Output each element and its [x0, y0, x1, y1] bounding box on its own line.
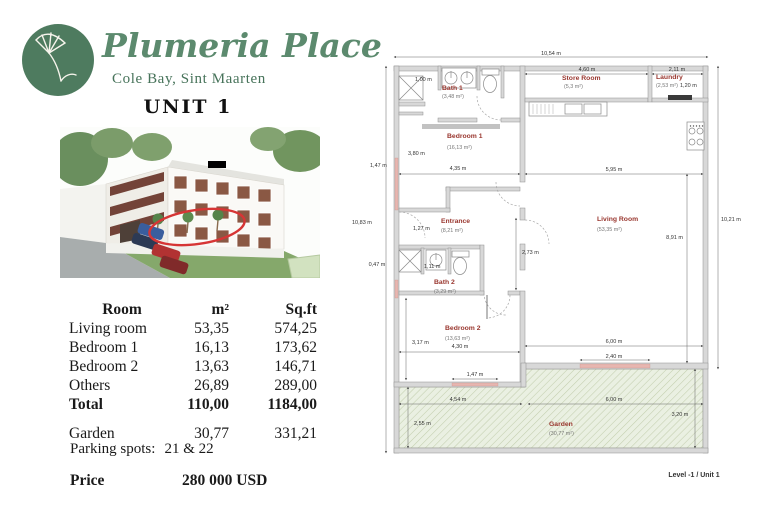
brand-location: Cole Bay, Sint Maarten: [112, 71, 266, 88]
svg-text:4,60 m: 4,60 m: [579, 67, 596, 73]
svg-text:8,91 m: 8,91 m: [666, 235, 683, 241]
table-row: Bedroom 1 16,13 173,62: [68, 338, 318, 357]
svg-text:1,20 m: 1,20 m: [680, 83, 697, 89]
brand-name: Plumeria Place: [102, 26, 382, 65]
col-header-m2: m²: [176, 300, 230, 319]
svg-text:(16,13 m²): (16,13 m²): [447, 145, 472, 151]
svg-text:2,73 m: 2,73 m: [522, 250, 539, 256]
floor-plan: 10,54 m 10,83 m 10,21 m 4,60 m 2,11 m 1,…: [350, 42, 768, 532]
table-row: Bedroom 2 13,63 146,71: [68, 357, 318, 376]
svg-text:1,11 m: 1,11 m: [424, 264, 441, 270]
closet-bar: [422, 124, 500, 129]
kitchen-sink-icon: [529, 102, 607, 116]
svg-text:6,00 m: 6,00 m: [606, 339, 623, 345]
svg-text:1,47 m: 1,47 m: [370, 163, 387, 169]
svg-text:10,54 m: 10,54 m: [541, 51, 561, 57]
svg-text:2,55 m: 2,55 m: [414, 421, 431, 427]
toilet-icon: [482, 69, 499, 93]
room-label-bedroom1: Bedroom 1: [447, 133, 483, 140]
unit-title: UNIT 1: [56, 96, 320, 118]
table-row: Others 26,89 289,00: [68, 376, 318, 395]
svg-text:6,00 m: 6,00 m: [606, 397, 623, 403]
room-label-garden: Garden: [549, 421, 573, 428]
svg-text:1,47 m: 1,47 m: [467, 372, 484, 378]
col-header-sqft: Sq.ft: [230, 300, 318, 319]
svg-text:(30,77 m²): (30,77 m²): [549, 431, 574, 437]
svg-text:4,54 m: 4,54 m: [450, 397, 467, 403]
svg-text:10,83 m: 10,83 m: [352, 220, 372, 226]
svg-text:10,21 m: 10,21 m: [721, 217, 741, 223]
svg-text:(13,63 m²): (13,63 m²): [445, 336, 470, 342]
svg-text:0,47 m: 0,47 m: [369, 262, 386, 268]
svg-text:4,35 m: 4,35 m: [450, 166, 467, 172]
svg-text:3,80 m: 3,80 m: [408, 151, 425, 157]
plan-footer-label: Level -1 / Unit 1: [668, 472, 719, 479]
price-line: Price 280 000 USD: [70, 472, 104, 490]
toilet2-icon: [452, 251, 469, 275]
table-row-total: Total 110,00 1184,00: [68, 395, 318, 414]
svg-text:(3,48 m²): (3,48 m²): [442, 94, 464, 100]
svg-text:(53,35 m²): (53,35 m²): [597, 227, 622, 233]
stove-icon: [687, 122, 704, 150]
room-label-entrance: Entrance: [441, 218, 470, 225]
room-label-store: Store Room: [562, 75, 601, 82]
svg-text:(8,21 m²): (8,21 m²): [441, 228, 463, 234]
svg-text:(3,29 m²): (3,29 m²): [434, 289, 456, 295]
svg-text:1,00 m: 1,00 m: [415, 77, 432, 83]
area-table: Room m² Sq.ft Living room 53,35 574,25 B…: [68, 300, 318, 443]
shower2-icon: [399, 250, 421, 272]
door-arcs: [399, 96, 549, 319]
washer-icon: [668, 95, 692, 100]
svg-text:2,40 m: 2,40 m: [606, 354, 623, 360]
svg-text:1,27 m: 1,27 m: [413, 226, 430, 232]
table-header-row: Room m² Sq.ft: [68, 300, 318, 319]
table-row: Living room 53,35 574,25: [68, 319, 318, 338]
parking-label: Parking spots:: [70, 441, 155, 457]
building-render: [60, 127, 320, 278]
room-label-living: Living Room: [597, 216, 638, 223]
parking-value: 21 & 22: [164, 441, 213, 457]
room-label-laundry: Laundry: [656, 74, 683, 81]
room-label-bedroom2: Bedroom 2: [445, 325, 481, 332]
room-label-bath2: Bath 2: [434, 279, 455, 286]
col-header-room: Room: [68, 300, 176, 319]
parking-line: Parking spots:21 & 22: [70, 441, 214, 458]
price-label: Price: [70, 472, 104, 489]
svg-text:2,11 m: 2,11 m: [669, 67, 686, 73]
room-label-bath1: Bath 1: [442, 85, 463, 92]
plumeria-logo-icon: [22, 24, 94, 96]
svg-text:5,95 m: 5,95 m: [606, 167, 623, 173]
svg-text:(5,3 m²): (5,3 m²): [564, 84, 583, 90]
svg-text:3,17 m: 3,17 m: [412, 340, 429, 346]
svg-text:(2,53 m²): (2,53 m²): [656, 83, 678, 89]
brochure-page: Plumeria Place Cole Bay, Sint Maarten UN…: [0, 0, 768, 532]
price-value: 280 000 USD: [182, 472, 267, 490]
svg-text:3,20 m: 3,20 m: [672, 412, 689, 418]
svg-text:4,30 m: 4,30 m: [452, 344, 469, 350]
